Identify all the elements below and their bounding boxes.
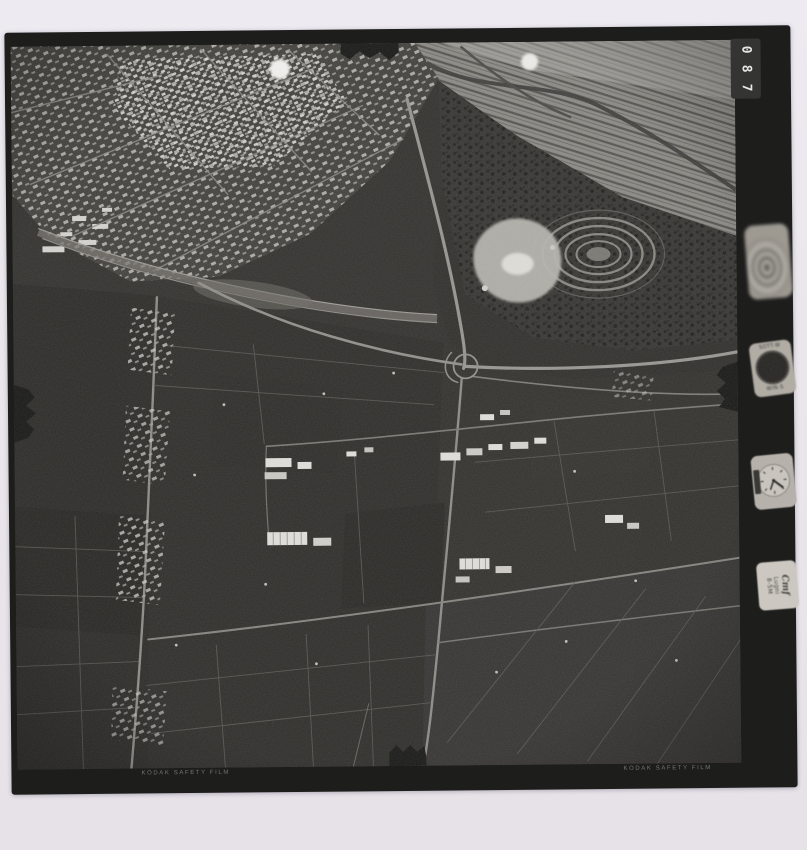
aerial-photograph xyxy=(10,40,741,770)
clock-face xyxy=(750,453,797,511)
mission-data-card: Cmf Lugni 8-5M xyxy=(756,560,800,611)
clock-dial xyxy=(750,453,797,511)
scan-background: 0 8 7 SOTT-W WIN-S xyxy=(0,0,807,850)
instrument-dial: SOTT-W WIN-S xyxy=(748,339,797,398)
aerial-scene xyxy=(10,40,741,770)
film-brand-text-left: KODAK SAFETY FILM xyxy=(141,770,229,777)
frame-counter-digit-middle: 8 xyxy=(739,65,753,73)
aerial-film-frame: 0 8 7 SOTT-W WIN-S xyxy=(4,25,797,795)
vignette xyxy=(10,40,741,770)
film-brand-text-right: KODAK SAFETY FILM xyxy=(623,765,711,772)
frame-counter-digit-top: 0 xyxy=(739,46,753,54)
instrument-label-bottom: WIN-S xyxy=(754,383,796,394)
dial-face xyxy=(753,348,791,386)
frame-counter-digit-bottom: 7 xyxy=(739,84,753,92)
altimeter-dial xyxy=(744,223,794,300)
frame-counter: 0 8 7 xyxy=(730,39,761,99)
